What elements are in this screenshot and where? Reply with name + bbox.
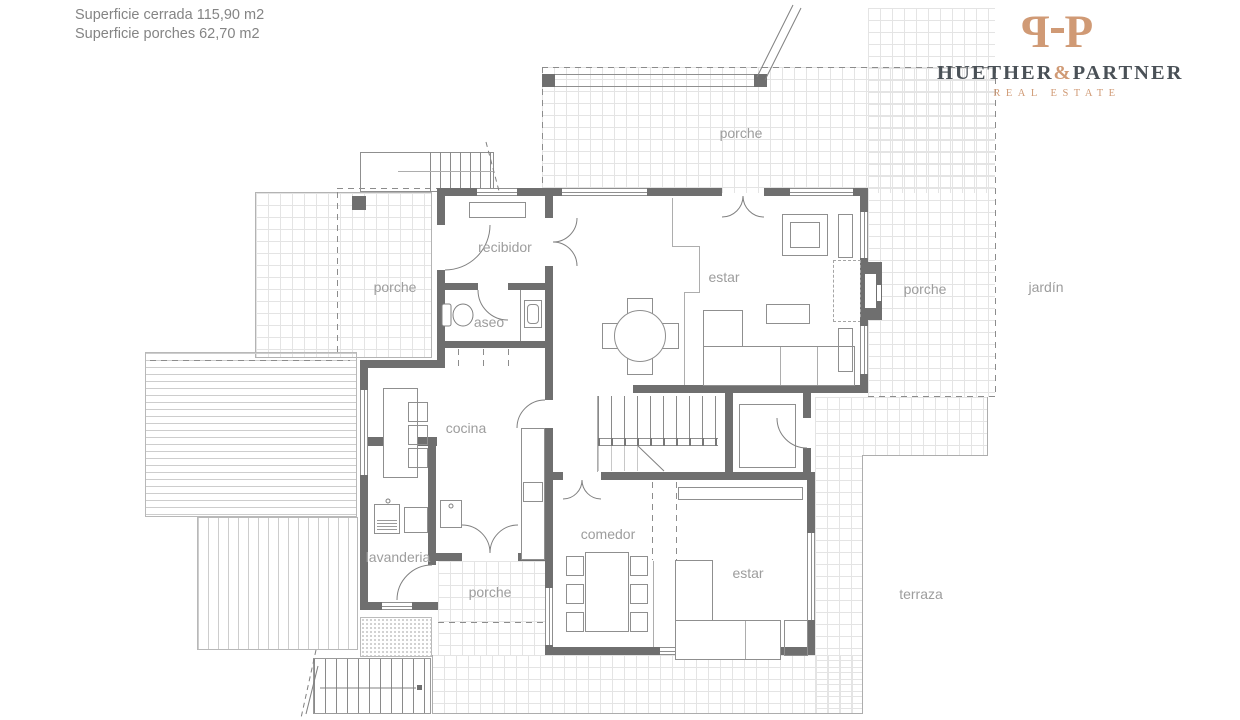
cooktop [523, 482, 543, 502]
dining-chair [630, 612, 648, 632]
wall [435, 553, 462, 561]
door-arc [397, 565, 432, 600]
fireplace-slot [877, 285, 881, 301]
closet-dashed [508, 349, 509, 367]
wall [517, 188, 562, 196]
window [360, 390, 368, 475]
porch-bottom-dashed [438, 622, 545, 623]
toilet-bowl [453, 304, 473, 326]
wall [437, 188, 445, 225]
room-label-porche-left: porche [374, 279, 417, 295]
door-arc [722, 196, 743, 217]
room-label-aseo: aseo [474, 314, 504, 330]
boundary-dashed-right [995, 67, 996, 397]
surface-line-porches: Superficie porches 62,70 m2 [75, 25, 264, 44]
floor-step-line [699, 246, 700, 293]
door-arc [553, 218, 577, 242]
logo-brand-main: HUETHER [937, 62, 1054, 84]
wall-panel [838, 328, 853, 372]
window [807, 533, 815, 620]
door-arc [462, 525, 490, 553]
sofa-cushion-line [817, 347, 818, 385]
room-label-cocina: cocina [446, 420, 486, 436]
room-label-estar2: estar [732, 565, 763, 581]
terraza-paving-upper [815, 397, 987, 456]
surface-line-closed: Superficie cerrada 115,90 m2 [75, 6, 264, 25]
dining-chair [566, 584, 584, 604]
room-label-porche-right: porche [904, 281, 947, 297]
washer-vent [377, 520, 397, 531]
logo-monogram-dash [1051, 28, 1064, 33]
room-label-terraza: terraza [899, 586, 943, 602]
door-arc [490, 525, 518, 553]
room-label-lavanderia: lavanderia [366, 549, 431, 565]
wall [803, 393, 811, 418]
wall [553, 647, 660, 655]
sofa-cushion-line [745, 621, 746, 659]
armchair-seat [790, 222, 820, 248]
room-label-jardin: jardín [1028, 279, 1063, 295]
room-label-porche-bottom: porche [469, 584, 512, 600]
boundary-dashed-bottom-right [868, 396, 995, 397]
stair-arrow-tip [417, 685, 422, 690]
stair-edge [597, 396, 598, 472]
door-arc [563, 480, 582, 499]
open-plan-dashed [652, 482, 653, 560]
logo-brand-amp: & [1054, 62, 1073, 84]
wall [545, 348, 553, 400]
wall [437, 283, 478, 290]
room-label-estar: estar [708, 269, 739, 285]
closet-dashed [483, 349, 484, 367]
faucet [386, 499, 390, 503]
terraza-edge [862, 456, 863, 713]
wall [860, 188, 868, 212]
fireplace-hearth [865, 274, 876, 308]
staircase-upper-treads [598, 396, 719, 440]
wall [545, 266, 553, 348]
room-label-comedor: comedor [581, 526, 635, 542]
wall [545, 645, 553, 655]
floor-step-line [684, 292, 700, 293]
door-arc [517, 400, 545, 428]
porch-column [754, 74, 767, 87]
wall [360, 475, 368, 610]
porch-left-paving [255, 192, 432, 358]
wall [725, 393, 733, 472]
wall [360, 360, 445, 368]
logo-monogram-p-right: P [1065, 9, 1094, 56]
gravel-patch [360, 617, 432, 657]
floor-step-line [672, 246, 700, 247]
wall [807, 472, 815, 533]
terraza-edge [987, 397, 988, 456]
logo-brand-sub: PARTNER [1073, 62, 1184, 84]
sofa-cushion-line [780, 347, 781, 385]
open-plan-dashed [676, 482, 677, 560]
floor-step-line [684, 292, 685, 385]
exterior-stair-line [398, 171, 494, 172]
boundary-dashed-top [542, 67, 995, 68]
wall [764, 188, 790, 196]
stool [408, 448, 428, 468]
window [477, 188, 517, 196]
sofa-seat [703, 346, 855, 386]
room-label-recibidor: recibidor [478, 239, 532, 255]
wall [545, 428, 553, 588]
wall [360, 360, 368, 390]
porch-column [352, 196, 366, 210]
agency-logo: P P HUETHER&PARTNER REAL ESTATE [937, 4, 1177, 99]
wall [437, 341, 553, 348]
room-label-porche-top: porche [720, 125, 763, 141]
round-table [614, 310, 666, 362]
sideboard [678, 487, 803, 500]
wall [601, 472, 815, 480]
porch-left-dashed [337, 192, 338, 355]
stool [408, 425, 428, 445]
terraza-edge [432, 655, 433, 713]
dining-chair [566, 612, 584, 632]
wall [633, 385, 868, 393]
dining-chair [566, 556, 584, 576]
stair-rail-balusters [598, 438, 718, 446]
porch-bottom-paving [438, 561, 545, 655]
sink-basin [527, 304, 539, 324]
deck-vertical-planks [197, 517, 358, 650]
dining-chair [630, 556, 648, 576]
fireplace-dashed-outline [833, 260, 861, 322]
stool [408, 402, 428, 422]
dining-chair [630, 584, 648, 604]
door-arc [743, 196, 764, 217]
wall [545, 188, 553, 218]
storage-shelving [739, 404, 796, 468]
exterior-stair-treads [430, 152, 494, 192]
deck-horizontal-planks [145, 352, 357, 517]
porch-column [542, 74, 555, 87]
terraza-edge [862, 455, 988, 456]
logo-monogram-p-left: P [1021, 9, 1050, 56]
terraza-edge [432, 713, 863, 714]
wall [647, 188, 722, 196]
dryer [404, 507, 428, 533]
staircase-lower-treads [598, 446, 648, 471]
floorplan-canvas: porche porche recibidor aseo estar porch… [0, 0, 1240, 720]
surface-info: Superficie cerrada 115,90 m2 Superficie … [75, 6, 264, 44]
logo-monogram: P P [937, 4, 1177, 60]
window [860, 326, 868, 374]
wall-panel [838, 214, 853, 258]
porch-roof-beam [547, 74, 767, 87]
logo-brand: HUETHER&PARTNER [937, 62, 1177, 85]
window [860, 212, 868, 258]
window [790, 188, 853, 196]
window [382, 602, 412, 610]
sofa-seat [675, 620, 781, 660]
side-table [784, 620, 808, 656]
terraza-paving-bottom [432, 655, 862, 713]
exterior-stair-bottom [313, 658, 431, 714]
closet-dashed [458, 349, 459, 367]
wall [545, 472, 563, 480]
door-arc [553, 242, 577, 266]
coffee-table [766, 304, 810, 324]
floor-step-line [672, 198, 673, 247]
door-arc [582, 480, 601, 499]
wall [428, 437, 436, 565]
window [562, 188, 647, 196]
dishwasher [440, 500, 462, 528]
deck-dashed-edge [150, 360, 350, 361]
dining-table [585, 552, 629, 632]
aseo-divider [520, 290, 521, 341]
window [545, 588, 553, 645]
wall [860, 318, 868, 326]
hall-closet [469, 202, 526, 218]
floor-step-line [653, 561, 654, 647]
logo-tagline: REAL ESTATE [937, 88, 1177, 99]
